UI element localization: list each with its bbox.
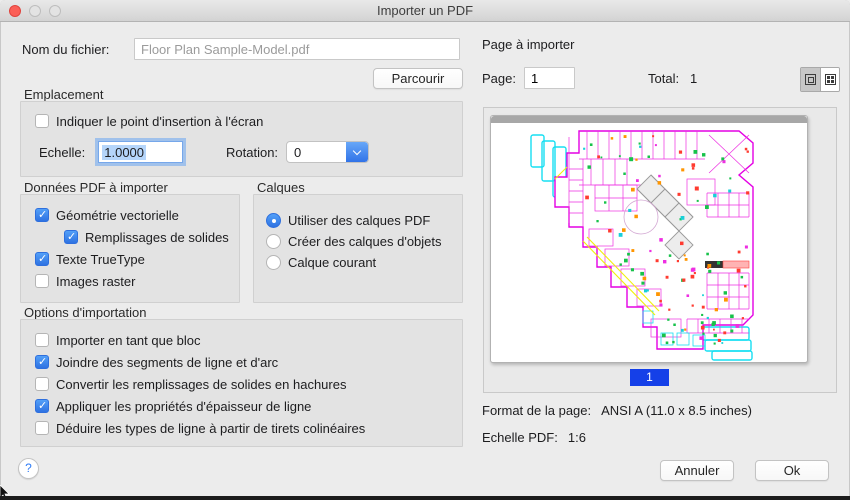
import-pdf-dialog: Importer un PDF Nom du fichier: Parcouri…	[0, 0, 850, 500]
checkbox-row-raster-images[interactable]: Images raster	[21, 270, 239, 292]
file-name-input[interactable]	[134, 38, 460, 60]
checkbox-label: Images raster	[56, 274, 135, 289]
page-number-input[interactable]	[524, 67, 575, 89]
titlebar: Importer un PDF	[0, 0, 850, 22]
scale-value-selected-text: 1.0000	[102, 145, 146, 160]
pdf-scale-value: 1:6	[568, 430, 586, 445]
checkbox-row-apply-lineweight[interactable]: Appliquer les propriétés d'épaisseur de …	[21, 395, 462, 417]
insertion-point-checkbox-row[interactable]: Indiquer le point d'insertion à l'écran	[21, 110, 462, 132]
checkbox-icon[interactable]	[35, 355, 49, 369]
group-title: Options d'importation	[24, 305, 146, 320]
single-page-view-button[interactable]	[801, 68, 820, 91]
total-pages-label: Total:	[648, 71, 679, 86]
group-title: Données PDF à importer	[24, 180, 168, 195]
group-emplacement: Emplacement Indiquer le point d'insertio…	[20, 87, 463, 177]
page-number-badge[interactable]: 1	[630, 369, 669, 386]
checkbox-icon[interactable]	[35, 421, 49, 435]
window-title: Importer un PDF	[0, 3, 850, 18]
dropdown-cap[interactable]	[346, 142, 368, 162]
checkbox-icon[interactable]	[35, 208, 49, 222]
checkbox-icon[interactable]	[35, 252, 49, 266]
radio-label: Calque courant	[288, 255, 376, 270]
radio-icon[interactable]	[266, 255, 281, 270]
checkbox-label: Indiquer le point d'insertion à l'écran	[56, 114, 263, 129]
checkbox-label: Joindre des segments de ligne et d'arc	[56, 355, 278, 370]
checkbox-row-truetype-text[interactable]: Texte TrueType	[21, 248, 239, 270]
chevron-down-icon	[353, 146, 361, 154]
scale-label: Echelle:	[39, 145, 85, 160]
checkbox-label: Géométrie vectorielle	[56, 208, 179, 223]
help-button[interactable]: ?	[18, 458, 39, 479]
checkbox-label: Texte TrueType	[56, 252, 145, 267]
browse-button[interactable]: Parcourir	[373, 68, 463, 89]
radio-label: Utiliser des calques PDF	[288, 213, 430, 228]
checkbox-label: Appliquer les propriétés d'épaisseur de …	[56, 399, 311, 414]
checkbox-icon[interactable]	[64, 230, 78, 244]
radio-icon[interactable]	[266, 213, 281, 228]
checkbox-icon[interactable]	[35, 114, 49, 128]
page-format-value: ANSI A (11.0 x 8.5 inches)	[601, 403, 752, 418]
radio-row-current-layer[interactable]: Calque courant	[254, 252, 462, 273]
rotation-label: Rotation:	[226, 145, 278, 160]
checkbox-icon[interactable]	[35, 399, 49, 413]
preview-mode-toggle	[800, 67, 840, 92]
radio-row-create-object-layers[interactable]: Créer des calques d'objets	[254, 231, 462, 252]
pdf-page-thumbnail[interactable]	[490, 115, 808, 363]
checkbox-row-import-as-block[interactable]: Importer en tant que bloc	[21, 329, 462, 351]
checkbox-row-solid-fills[interactable]: Remplissages de solides	[21, 226, 239, 248]
checkbox-icon[interactable]	[35, 333, 49, 347]
checkbox-label: Remplissages de solides	[85, 230, 229, 245]
page-to-import-title: Page à importer	[482, 37, 575, 52]
rotation-dropdown[interactable]: 0	[286, 141, 369, 163]
checkbox-label: Convertir les remplissages de solides en…	[56, 377, 346, 392]
checkbox-row-convert-fills-to-hatch[interactable]: Convertir les remplissages de solides en…	[21, 373, 462, 395]
group-import-options: Options d'importation Importer en tant q…	[20, 305, 463, 447]
grid-view-icon	[825, 74, 836, 85]
checkbox-label: Importer en tant que bloc	[56, 333, 201, 348]
cancel-button[interactable]: Annuler	[660, 460, 734, 481]
group-pdf-data: Données PDF à importer Géométrie vectori…	[20, 180, 240, 303]
checkbox-icon[interactable]	[35, 377, 49, 391]
group-layers: Calques Utiliser des calques PDF Créer d…	[253, 180, 463, 303]
screen-edge	[0, 496, 850, 500]
radio-label: Créer des calques d'objets	[288, 234, 442, 249]
checkbox-label: Déduire les types de ligne à partir de t…	[56, 421, 365, 436]
floor-plan-preview	[491, 123, 808, 363]
checkbox-icon[interactable]	[35, 274, 49, 288]
pdf-scale-label: Echelle PDF:	[482, 430, 558, 445]
scale-input[interactable]: 1.0000	[98, 141, 183, 163]
page-number-label: Page:	[482, 71, 516, 86]
checkbox-row-join-segments[interactable]: Joindre des segments de ligne et d'arc	[21, 351, 462, 373]
radio-row-use-pdf-layers[interactable]: Utiliser des calques PDF	[254, 210, 462, 231]
ok-button[interactable]: Ok	[755, 460, 829, 481]
radio-icon[interactable]	[266, 234, 281, 249]
group-title: Calques	[257, 180, 305, 195]
single-page-icon	[805, 74, 816, 85]
group-title: Emplacement	[24, 87, 103, 102]
checkbox-row-vector-geometry[interactable]: Géométrie vectorielle	[21, 204, 239, 226]
page-format-label: Format de la page:	[482, 403, 591, 418]
page-top-bar	[491, 116, 807, 123]
rotation-value: 0	[287, 145, 346, 160]
thumbnail-grid-view-button[interactable]	[820, 68, 839, 91]
checkbox-row-infer-linetypes[interactable]: Déduire les types de ligne à partir de t…	[21, 417, 462, 439]
pdf-preview-panel: 1	[483, 107, 837, 393]
file-name-label: Nom du fichier:	[22, 42, 109, 57]
total-pages-value: 1	[690, 71, 697, 86]
